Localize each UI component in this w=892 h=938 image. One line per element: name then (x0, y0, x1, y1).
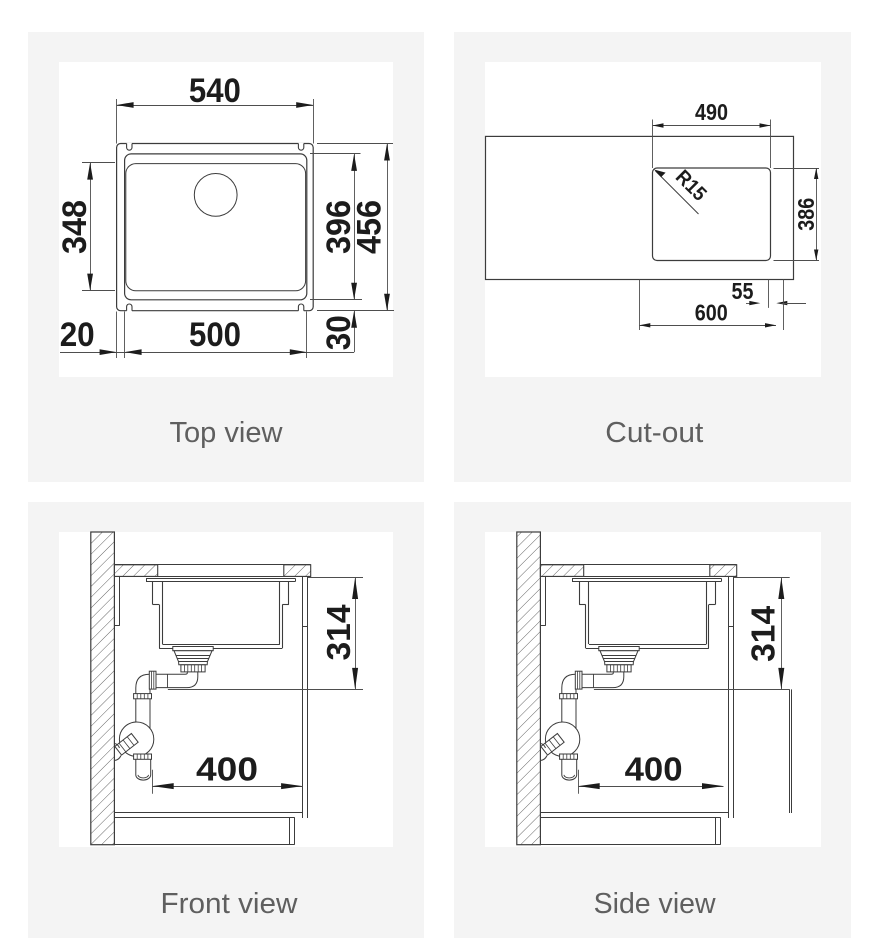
svg-text:Front view: Front view (161, 888, 299, 920)
svg-text:Side view: Side view (594, 888, 717, 920)
svg-text:30: 30 (320, 315, 358, 350)
svg-text:314: 314 (744, 605, 781, 662)
svg-text:540: 540 (189, 72, 241, 110)
svg-text:314: 314 (320, 604, 357, 661)
svg-text:Top view: Top view (170, 417, 284, 449)
svg-text:490: 490 (695, 99, 728, 125)
svg-text:400: 400 (625, 750, 683, 787)
svg-text:386: 386 (793, 198, 819, 231)
svg-text:600: 600 (695, 300, 728, 326)
svg-text:456: 456 (351, 200, 389, 254)
svg-text:348: 348 (56, 200, 94, 254)
svg-text:55: 55 (732, 278, 754, 304)
svg-text:Cut-out: Cut-out (605, 417, 703, 449)
svg-text:20: 20 (60, 316, 95, 354)
svg-text:400: 400 (196, 750, 258, 787)
svg-text:500: 500 (189, 316, 241, 354)
